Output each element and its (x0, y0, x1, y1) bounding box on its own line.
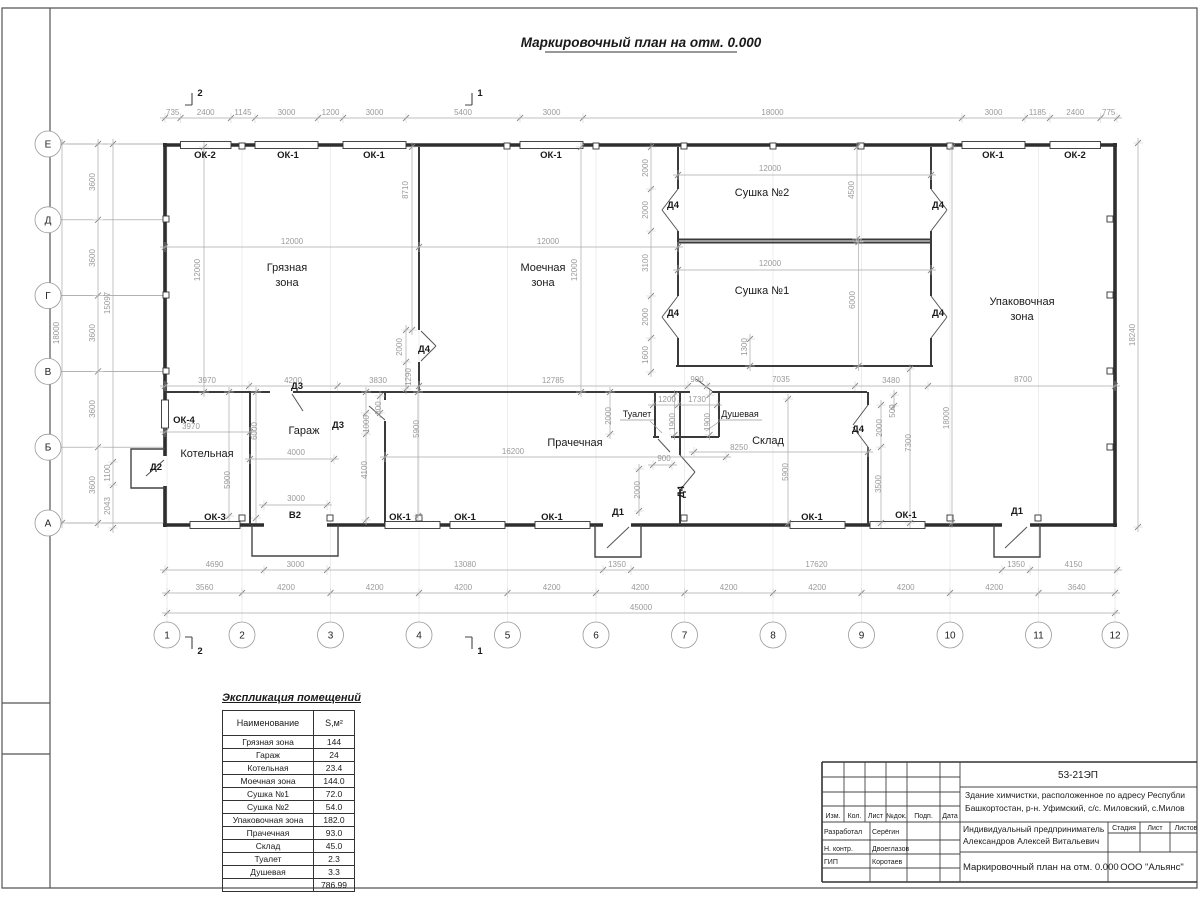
svg-text:4100: 4100 (360, 461, 369, 479)
svg-text:1900: 1900 (703, 413, 712, 431)
svg-text:3560: 3560 (196, 583, 214, 592)
section-mark-1-bottom: 1 (477, 646, 483, 657)
svg-text:3000: 3000 (287, 494, 305, 503)
table-row: Грязная зона144 (223, 736, 355, 749)
svg-text:3830: 3830 (369, 376, 387, 385)
window-label: ОК-1 (801, 512, 823, 523)
svg-text:3000: 3000 (366, 108, 384, 117)
tb-drawing-title: Маркировочный план на отм. 0.000 (963, 862, 1119, 873)
svg-text:3970: 3970 (198, 376, 216, 385)
door-label: Д1 (1011, 506, 1024, 517)
room-label-wash-zone: Моечная (520, 262, 565, 274)
svg-text:12000: 12000 (281, 237, 304, 246)
svg-text:3500: 3500 (874, 475, 883, 493)
room-schedule: Экспликация помещений Наименование S,м² … (222, 692, 392, 892)
dim-labels-sides: 18000 3600 3600 3600 3600 3600 15097 110… (52, 173, 1137, 515)
tb-hdr-list: Лист (868, 813, 884, 820)
svg-text:12785: 12785 (542, 376, 565, 385)
drawing-sheet: Маркировочный план на отм. 0.000 (0, 0, 1200, 900)
tb-hdr-izm: Изм. (826, 813, 841, 820)
tb-name-2: Коротаев (872, 859, 903, 866)
door-label: Д1 (612, 507, 625, 518)
svg-text:2000: 2000 (641, 201, 650, 219)
svg-text:4200: 4200 (897, 583, 915, 592)
room-labels: Грязная зона Моечная зона Сушка №2 Сушка… (180, 187, 1054, 460)
svg-text:6000: 6000 (848, 291, 857, 309)
svg-text:зона: зона (275, 277, 299, 289)
svg-text:1200: 1200 (322, 108, 340, 117)
section-mark-1-top: 1 (477, 88, 483, 99)
axis-number: 1 (164, 631, 170, 642)
svg-text:45000: 45000 (630, 603, 653, 612)
stage-hdr: Стадия (1112, 825, 1136, 832)
svg-text:12000: 12000 (193, 258, 202, 281)
svg-text:2400: 2400 (1066, 108, 1084, 117)
window-label: ОК-1 (389, 512, 411, 523)
axis-number: 12 (1109, 631, 1121, 642)
tb-hdr-kol: Кол. (848, 813, 862, 820)
tb-name-1: Двоеглазов (872, 846, 909, 853)
svg-text:7300: 7300 (904, 434, 913, 452)
door-label: Д4 (932, 308, 945, 319)
window-label: ОК-4 (173, 415, 195, 426)
table-row-total: 786.99 (223, 879, 355, 892)
tb-hdr-ndok: №док. (886, 813, 907, 820)
svg-text:1000: 1000 (362, 415, 371, 433)
svg-text:2000: 2000 (641, 308, 650, 326)
door-label: Д4 (852, 424, 865, 435)
tb-role-1: Н. контр. (824, 846, 853, 853)
window-label: ОК-1 (540, 150, 562, 161)
dim-chains (57, 113, 1143, 618)
dim-labels-inner: 12000 12000 8710 2000 1290 3970 4200 383… (182, 159, 1032, 503)
svg-text:18000: 18000 (761, 108, 784, 117)
axis-number: 10 (944, 631, 956, 642)
svg-text:500: 500 (888, 404, 897, 418)
walls (131, 143, 1117, 557)
axis-number: 2 (239, 631, 245, 642)
svg-text:1300: 1300 (740, 338, 749, 356)
page-title: Маркировочный план на отм. 0.000 (521, 35, 762, 50)
svg-text:4200: 4200 (808, 583, 826, 592)
axis-letter: Е (45, 140, 52, 151)
section-mark-2-top: 2 (197, 88, 202, 99)
svg-text:18000: 18000 (52, 321, 61, 344)
opening-labels: ОК-2 ОК-1 ОК-1 ОК-1 ОК-1 ОК-2 ОК-3 ОК-1 … (150, 150, 1086, 523)
project-code: 53-21ЭП (1058, 770, 1098, 781)
svg-text:8250: 8250 (730, 443, 748, 452)
col-header-area: S,м² (314, 711, 355, 736)
room-label-dry2: Сушка №2 (735, 187, 789, 199)
svg-text:5900: 5900 (781, 463, 790, 481)
axis-letter: Б (45, 443, 52, 454)
svg-text:3000: 3000 (985, 108, 1003, 117)
svg-text:18240: 18240 (1128, 323, 1137, 346)
svg-text:2000: 2000 (875, 419, 884, 437)
svg-text:5900: 5900 (223, 471, 232, 489)
room-schedule-table: Наименование S,м² Грязная зона144 Гараж2… (222, 710, 355, 892)
svg-text:1185: 1185 (1029, 108, 1047, 117)
axis-letter: Д (45, 215, 52, 226)
room-schedule-title: Экспликация помещений (222, 692, 392, 704)
room-label-boiler: Котельная (180, 448, 233, 460)
room-label-storage: Склад (752, 435, 784, 447)
room-label-garage: Гараж (288, 425, 320, 437)
svg-text:1145: 1145 (234, 108, 252, 117)
svg-text:1350: 1350 (608, 560, 626, 569)
svg-text:3600: 3600 (88, 400, 97, 418)
svg-text:зона: зона (1010, 311, 1034, 323)
svg-text:2000: 2000 (633, 481, 642, 499)
svg-text:4200: 4200 (631, 583, 649, 592)
axis-number: 5 (505, 631, 511, 642)
client-line2: Александров Алексей Витальевич (963, 836, 1099, 846)
svg-text:18000: 18000 (942, 406, 951, 429)
axis-number: 3 (328, 631, 334, 642)
room-label-dirty-zone: Грязная (267, 262, 308, 274)
axis-number: 8 (770, 631, 776, 642)
svg-text:6000: 6000 (250, 422, 259, 440)
window-label: ОК-3 (204, 512, 226, 523)
svg-text:4150: 4150 (1065, 560, 1083, 569)
table-row: Туалет2.3 (223, 853, 355, 866)
axis-number: 11 (1033, 631, 1044, 642)
room-label-toilet: Туалет (623, 409, 651, 419)
title-block: 53-21ЭП Здание химчистки, расположенное … (822, 762, 1198, 882)
window-label: ОК-1 (363, 150, 385, 161)
svg-text:3600: 3600 (88, 249, 97, 267)
door-label: Д4 (418, 344, 431, 355)
table-row: Гараж24 (223, 749, 355, 762)
svg-text:5400: 5400 (454, 108, 472, 117)
svg-text:4200: 4200 (454, 583, 472, 592)
svg-text:2400: 2400 (197, 108, 215, 117)
total-area: 786.99 (314, 879, 355, 892)
svg-text:12000: 12000 (537, 237, 560, 246)
letter-axis-leaders (61, 144, 163, 523)
svg-text:735: 735 (166, 108, 180, 117)
svg-text:4200: 4200 (543, 583, 561, 592)
svg-text:2043: 2043 (103, 497, 112, 515)
svg-text:3000: 3000 (278, 108, 296, 117)
window-label: ОК-1 (541, 512, 563, 523)
svg-text:3640: 3640 (1068, 583, 1086, 592)
svg-text:12000: 12000 (759, 259, 782, 268)
table-row: Моечная зона144.0 (223, 775, 355, 788)
svg-text:1350: 1350 (1007, 560, 1025, 569)
tb-role-0: Разработал (824, 828, 862, 836)
svg-text:3000: 3000 (543, 108, 561, 117)
svg-text:3600: 3600 (88, 324, 97, 342)
axis-bubbles-numbers: 1 2 3 4 5 6 7 8 9 10 11 12 (154, 622, 1128, 648)
table-row: Душевая3.3 (223, 866, 355, 879)
door-label: Д3 (291, 381, 303, 392)
svg-text:900: 900 (657, 454, 671, 463)
svg-text:13080: 13080 (454, 560, 477, 569)
client-line1: Индивидуальный предприниматель (963, 824, 1105, 834)
svg-text:2000: 2000 (641, 159, 650, 177)
tb-role-2: ГИП (824, 859, 838, 866)
svg-text:12000: 12000 (759, 164, 782, 173)
svg-text:1600: 1600 (641, 346, 650, 364)
svg-text:3600: 3600 (88, 173, 97, 191)
svg-text:1290: 1290 (404, 368, 413, 386)
axis-number: 4 (416, 631, 422, 642)
window-label: ОК-2 (1064, 150, 1086, 161)
window-label: ОК-1 (454, 512, 476, 523)
axis-number: 6 (593, 631, 599, 642)
svg-text:4200: 4200 (277, 583, 295, 592)
svg-text:2000: 2000 (604, 407, 613, 425)
svg-text:12000: 12000 (570, 258, 579, 281)
svg-text:8710: 8710 (401, 181, 410, 199)
pilasters (163, 143, 1113, 521)
door-label: Д2 (150, 462, 162, 473)
section-mark-2-bottom: 2 (197, 646, 202, 657)
door-label: Д4 (932, 200, 945, 211)
room-label-laundry: Прачечная (547, 437, 602, 449)
svg-text:3600: 3600 (88, 476, 97, 494)
table-row: Сушка №172.0 (223, 788, 355, 801)
section-marks: 2 1 2 1 (185, 88, 483, 657)
svg-text:800: 800 (374, 401, 383, 415)
axis-letter: А (45, 519, 52, 530)
svg-text:зона: зона (531, 277, 555, 289)
table-row: Упаковочная зона182.0 (223, 814, 355, 827)
door-label: Д4 (667, 200, 680, 211)
svg-text:4200: 4200 (985, 583, 1003, 592)
axis-letter: В (45, 367, 52, 378)
table-row: Сушка №254.0 (223, 801, 355, 814)
list-hdr: Лист (1147, 825, 1163, 832)
svg-text:3100: 3100 (641, 254, 650, 272)
svg-text:15097: 15097 (103, 291, 112, 314)
svg-text:900: 900 (690, 375, 704, 384)
tb-hdr-podp: Подп. (914, 813, 933, 820)
door-label: Д3 (332, 420, 344, 431)
tb-name-0: Серёгин (872, 829, 899, 836)
axis-number: 7 (682, 631, 688, 642)
axis-letter: Г (45, 291, 51, 302)
svg-text:4500: 4500 (847, 181, 856, 199)
svg-text:5900: 5900 (412, 420, 421, 438)
windows (162, 142, 1101, 529)
door-label: Д4 (676, 485, 687, 498)
room-label-packing-zone: Упаковочная (989, 296, 1054, 308)
svg-text:4200: 4200 (720, 583, 738, 592)
svg-text:7035: 7035 (772, 375, 790, 384)
room-label-dry1: Сушка №1 (735, 285, 789, 297)
svg-text:4200: 4200 (366, 583, 384, 592)
room-label-shower: Душевая (721, 409, 759, 419)
tb-hdr-data: Дата (942, 813, 958, 820)
svg-text:3000: 3000 (287, 560, 305, 569)
svg-text:4690: 4690 (206, 560, 224, 569)
col-header-name: Наименование (223, 711, 314, 736)
table-row: Котельная23.4 (223, 762, 355, 775)
svg-text:3480: 3480 (882, 376, 900, 385)
dim-labels-top: 735 2400 1145 3000 1200 3000 5400 3000 1… (166, 108, 1116, 117)
tb-org: ООО "Альянс" (1120, 862, 1184, 873)
window-label: ОК-2 (194, 150, 216, 161)
project-desc-line2: Башкортостан, р-н. Уфимский, с/с. Миловс… (965, 803, 1185, 813)
svg-text:1730: 1730 (688, 395, 706, 404)
window-label: ОК-1 (895, 510, 917, 521)
window-label: ОК-1 (277, 150, 299, 161)
svg-text:1200: 1200 (658, 395, 676, 404)
svg-text:1900: 1900 (668, 413, 677, 431)
gate-label: В2 (289, 510, 301, 521)
table-row: Склад45.0 (223, 840, 355, 853)
svg-text:17620: 17620 (805, 560, 828, 569)
svg-text:1100: 1100 (103, 464, 112, 482)
svg-text:775: 775 (1102, 108, 1116, 117)
listov-hdr: Листов (1175, 825, 1198, 832)
svg-text:16200: 16200 (502, 447, 525, 456)
axis-number: 9 (859, 631, 865, 642)
svg-text:2000: 2000 (395, 338, 404, 356)
table-row: Прачечная93.0 (223, 827, 355, 840)
drawing-title: Маркировочный план на отм. 0.000 (521, 35, 762, 52)
plan-canvas: Маркировочный план на отм. 0.000 (0, 0, 1200, 900)
svg-text:4000: 4000 (287, 448, 305, 457)
svg-text:8700: 8700 (1014, 375, 1032, 384)
project-desc-line1: Здание химчистки, расположенное по адрес… (965, 790, 1185, 800)
door-label: Д4 (667, 308, 680, 319)
window-label: ОК-1 (982, 150, 1004, 161)
